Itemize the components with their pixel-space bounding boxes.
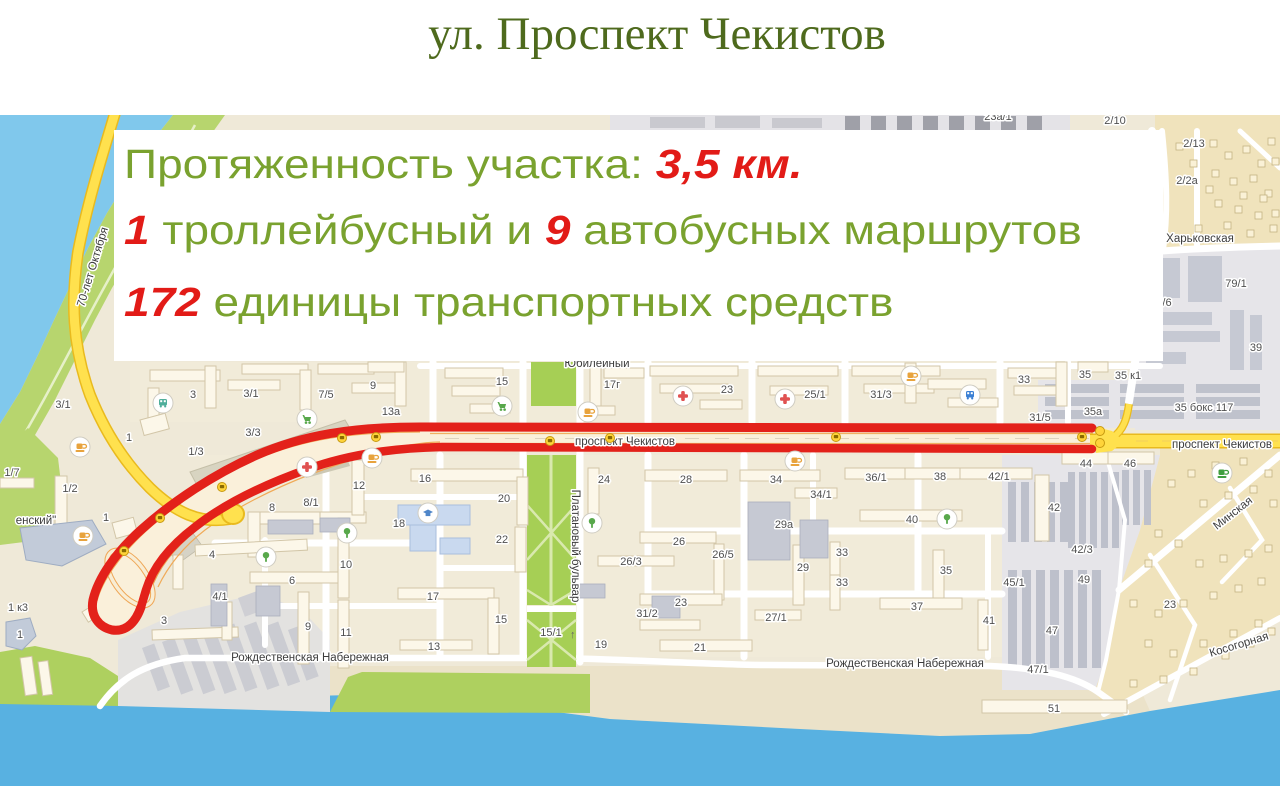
svg-text:42/3: 42/3 xyxy=(1071,544,1092,556)
svg-text:23: 23 xyxy=(721,384,733,396)
svg-text:36/1: 36/1 xyxy=(865,472,886,484)
svg-text:15: 15 xyxy=(495,614,507,626)
svg-text:45/1: 45/1 xyxy=(1003,577,1024,589)
svg-text:29а: 29а xyxy=(775,519,794,531)
svg-text:16: 16 xyxy=(419,473,431,485)
svg-text:35: 35 xyxy=(1079,369,1091,381)
svg-text:3/3: 3/3 xyxy=(245,427,260,439)
svg-text:22: 22 xyxy=(496,534,508,546)
svg-text:79/1: 79/1 xyxy=(1225,278,1246,290)
svg-text:10: 10 xyxy=(340,559,352,571)
svg-text:6: 6 xyxy=(289,575,295,587)
svg-text:20: 20 xyxy=(498,493,510,505)
svg-text:26: 26 xyxy=(673,536,685,548)
svg-text:38: 38 xyxy=(934,471,946,483)
svg-text:42/1: 42/1 xyxy=(988,471,1009,483)
svg-text:42: 42 xyxy=(1048,502,1060,514)
svg-text:2/2а: 2/2а xyxy=(1176,175,1198,187)
svg-text:3: 3 xyxy=(161,615,167,627)
svg-text:33: 33 xyxy=(836,547,848,559)
svg-text:7/5: 7/5 xyxy=(318,389,333,401)
svg-text:15/1: 15/1 xyxy=(540,627,561,639)
svg-text:35 бокс 117: 35 бокс 117 xyxy=(1175,402,1234,414)
svg-text:24: 24 xyxy=(598,474,610,486)
svg-text:Харьковская: Харьковская xyxy=(1166,233,1234,245)
svg-text:23: 23 xyxy=(675,597,687,609)
svg-text:3/1: 3/1 xyxy=(55,399,70,411)
svg-text:15: 15 xyxy=(496,376,508,388)
svg-text:47/1: 47/1 xyxy=(1027,664,1048,676)
svg-text:40: 40 xyxy=(906,514,918,526)
svg-text:1 к3: 1 к3 xyxy=(8,602,28,614)
svg-text:37: 37 xyxy=(911,601,923,613)
svg-text:35а: 35а xyxy=(1084,406,1103,418)
svg-text:17г: 17г xyxy=(604,379,620,391)
svg-text:34: 34 xyxy=(770,474,782,486)
svg-text:13а: 13а xyxy=(382,406,401,418)
svg-text:1: 1 xyxy=(103,512,109,524)
svg-text:проспект Чекистов: проспект Чекистов xyxy=(1172,439,1272,451)
svg-text:25/1: 25/1 xyxy=(804,389,825,401)
svg-text:1: 1 xyxy=(126,432,132,444)
svg-text:26/3: 26/3 xyxy=(620,556,641,568)
svg-text:35: 35 xyxy=(940,565,952,577)
svg-text:27/1: 27/1 xyxy=(765,612,786,624)
svg-text:39: 39 xyxy=(1250,342,1262,354)
svg-text:23: 23 xyxy=(1164,599,1176,611)
svg-text:31/3: 31/3 xyxy=(870,389,891,401)
svg-text:26/5: 26/5 xyxy=(712,549,733,561)
svg-text:8/1: 8/1 xyxy=(303,497,318,509)
svg-text:3/1: 3/1 xyxy=(243,388,258,400)
svg-text:енский": енский" xyxy=(16,515,56,527)
svg-text:1/3: 1/3 xyxy=(188,446,203,458)
svg-text:21: 21 xyxy=(694,642,706,654)
svg-text:51: 51 xyxy=(1048,703,1060,715)
svg-text:29: 29 xyxy=(797,562,809,574)
svg-text:1/2: 1/2 xyxy=(62,483,77,495)
svg-text:31/5: 31/5 xyxy=(1029,412,1050,424)
svg-text:9: 9 xyxy=(305,621,311,633)
svg-text:41: 41 xyxy=(983,615,995,627)
svg-text:8: 8 xyxy=(269,502,275,514)
svg-text:19: 19 xyxy=(595,639,607,651)
svg-text:34/1: 34/1 xyxy=(810,489,831,501)
svg-text:17: 17 xyxy=(427,591,439,603)
svg-text:4: 4 xyxy=(209,549,215,561)
svg-text:31/2: 31/2 xyxy=(636,608,657,620)
svg-text:33: 33 xyxy=(836,577,848,589)
svg-text:18: 18 xyxy=(393,518,405,530)
svg-text:проспект Чекистов: проспект Чекистов xyxy=(575,436,675,448)
svg-text:↑: ↑ xyxy=(570,629,576,641)
svg-text:/6: /6 xyxy=(1162,297,1171,309)
svg-text:3: 3 xyxy=(190,389,196,401)
svg-text:23а/1: 23а/1 xyxy=(984,115,1012,123)
svg-text:49: 49 xyxy=(1078,574,1090,586)
svg-text:Рождественская Набережная: Рождественская Набережная xyxy=(231,652,389,664)
svg-text:44: 44 xyxy=(1080,458,1092,470)
svg-text:2/13: 2/13 xyxy=(1183,138,1204,150)
svg-text:4/1: 4/1 xyxy=(212,591,227,603)
svg-text:33: 33 xyxy=(1018,374,1030,386)
svg-text:13: 13 xyxy=(428,641,440,653)
svg-text:1: 1 xyxy=(17,629,23,641)
svg-text:12: 12 xyxy=(353,480,365,492)
svg-text:1/7: 1/7 xyxy=(4,467,19,479)
svg-text:28: 28 xyxy=(680,474,692,486)
svg-text:2/10: 2/10 xyxy=(1104,115,1125,127)
svg-text:11: 11 xyxy=(340,627,351,639)
svg-text:47: 47 xyxy=(1046,625,1058,637)
svg-text:Рождественская Набережная: Рождественская Набережная xyxy=(826,658,984,670)
svg-text:9: 9 xyxy=(370,380,376,392)
svg-text:35 к1: 35 к1 xyxy=(1115,370,1141,382)
svg-text:Платановый бульвар: Платановый бульвар xyxy=(569,490,581,603)
svg-text:46: 46 xyxy=(1124,458,1136,470)
